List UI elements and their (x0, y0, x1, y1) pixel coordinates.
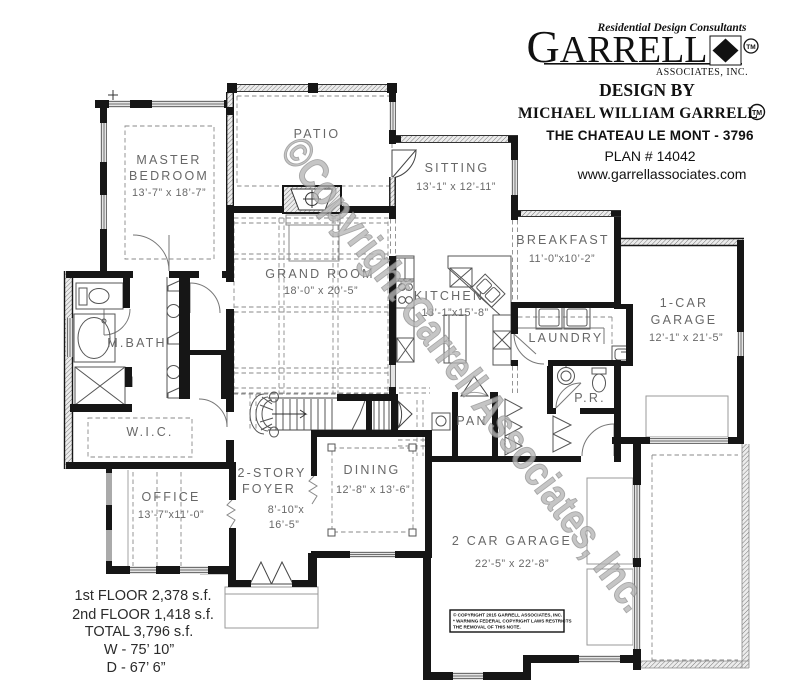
svg-text:* WARNING FEDERAL COPYRIGHT LA: * WARNING FEDERAL COPYRIGHT LAWS RESTRIC… (453, 619, 572, 624)
svg-text:LAUNDRY: LAUNDRY (529, 331, 604, 345)
svg-text:12’-8” x 13’-6”: 12’-8” x 13’-6” (336, 484, 410, 496)
svg-text:2nd FLOOR 1,418 s.f.: 2nd FLOOR 1,418 s.f. (72, 607, 214, 623)
svg-text:MASTER: MASTER (136, 153, 201, 167)
svg-text:DESIGN BY: DESIGN BY (599, 80, 695, 100)
svg-text:OFFICE: OFFICE (141, 490, 200, 504)
svg-text:M.BATH: M.BATH (107, 336, 167, 350)
svg-text:DINING: DINING (344, 463, 401, 477)
svg-text:PLAN # 14042: PLAN # 14042 (604, 148, 695, 164)
svg-text:16’-5”: 16’-5” (269, 519, 300, 531)
svg-text:13’-7” x 18’-7”: 13’-7” x 18’-7” (132, 187, 206, 199)
svg-text:13’-1” x 12’-11”: 13’-1” x 12’-11” (416, 181, 496, 193)
svg-text:8’-10”x: 8’-10”x (268, 504, 305, 516)
svg-text:D - 67’ 6”: D - 67’ 6” (106, 660, 165, 676)
svg-text:TM: TM (752, 110, 762, 117)
svg-text:GARAGE: GARAGE (651, 313, 718, 327)
svg-text:BEDROOM: BEDROOM (129, 169, 209, 183)
svg-text:© COPYRIGHT 2015 GARRELL ASSOC: © COPYRIGHT 2015 GARRELL ASSOCIATES, INC… (453, 612, 562, 618)
svg-text:2 CAR GARAGE: 2 CAR GARAGE (452, 534, 572, 548)
svg-text:ASSOCIATES, INC.: ASSOCIATES, INC. (656, 67, 748, 78)
svg-text:TOTAL 3,796 s.f.: TOTAL 3,796 s.f. (85, 624, 194, 640)
svg-text:1st FLOOR 2,378 s.f.: 1st FLOOR 2,378 s.f. (75, 588, 212, 604)
svg-text:13’-7”x11’-0”: 13’-7”x11’-0” (138, 509, 204, 521)
svg-text:MICHAEL WILLIAM GARRELL: MICHAEL WILLIAM GARRELL (518, 105, 758, 122)
svg-text:P.R.: P.R. (574, 391, 606, 405)
svg-text:www.garrellassociates.com: www.garrellassociates.com (577, 166, 747, 182)
svg-text:FOYER: FOYER (242, 482, 296, 496)
svg-text:11’-0”x10’-2”: 11’-0”x10’-2” (529, 253, 595, 265)
svg-text:SITTING: SITTING (425, 161, 490, 175)
svg-text:W.I.C.: W.I.C. (126, 425, 173, 439)
svg-text:THE REMOVAL OF THIS NOTE.: THE REMOVAL OF THIS NOTE. (453, 625, 521, 630)
svg-text:1-CAR: 1-CAR (660, 296, 709, 310)
svg-text:2-STORY: 2-STORY (237, 466, 306, 480)
svg-text:TM: TM (746, 44, 755, 51)
svg-text:W - 75’ 10”: W - 75’ 10” (104, 642, 175, 658)
svg-text:BREAKFAST: BREAKFAST (516, 233, 609, 247)
svg-text:THE CHATEAU LE MONT - 3796: THE CHATEAU LE MONT - 3796 (546, 128, 754, 143)
svg-text:22’-5” x 22’-8”: 22’-5” x 22’-8” (475, 558, 549, 570)
svg-text:18’-0” x 20’-5”: 18’-0” x 20’-5” (284, 285, 358, 297)
svg-text:12’-1” x 21’-5”: 12’-1” x 21’-5” (649, 332, 723, 344)
